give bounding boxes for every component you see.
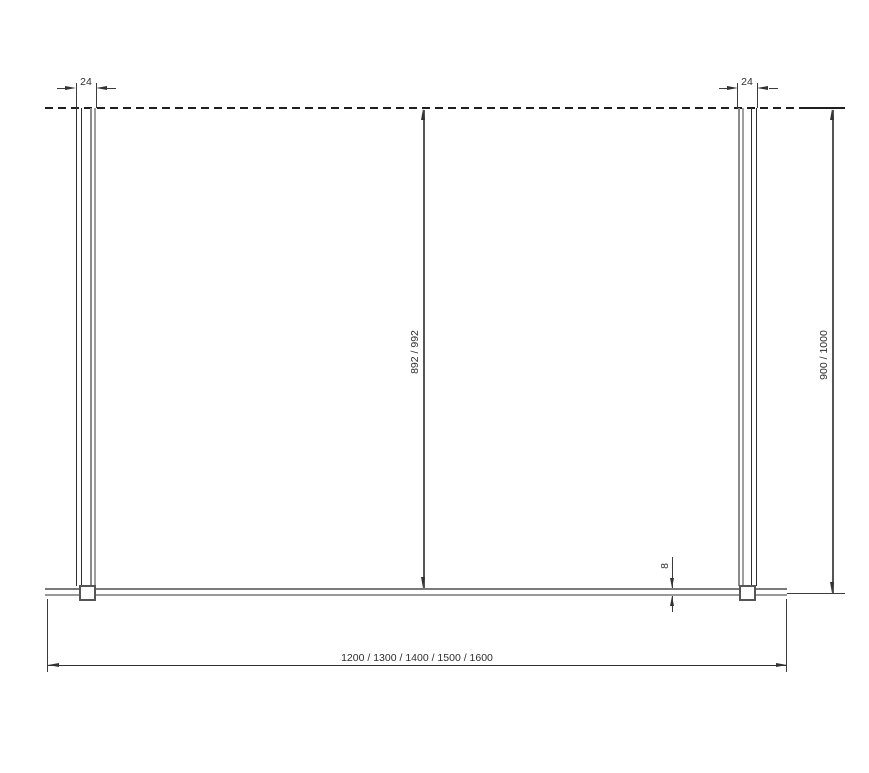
- glass-height-arrow-icon: [421, 577, 425, 588]
- right-profile-width-label: 24: [731, 76, 763, 88]
- left-24-tail-b: [107, 88, 116, 89]
- overall-width-label: 1200 / 1300 / 1400 / 1500 / 1600: [317, 652, 517, 664]
- right-foot-block: [739, 585, 756, 601]
- glass-height-dimension-line: [423, 110, 424, 588]
- right-glass-edge-line-2: [742, 108, 744, 586]
- right-24-tail-b: [769, 88, 778, 89]
- overall-width-dimension-line: [48, 665, 787, 666]
- thickness-arrow-icon: [670, 578, 674, 588]
- overall-width-arrow-icon: [48, 663, 59, 667]
- overall-width-extension-line-right: [786, 599, 787, 672]
- overall-height-label: 900 / 1000: [818, 315, 830, 395]
- right-profile-inner-edge: [751, 108, 752, 586]
- thickness-arrow-icon: [670, 596, 674, 606]
- technical-drawing-canvas: 24 24 892 / 992 900 / 1000 8 1200 / 1300…: [0, 0, 869, 773]
- top-reference-line: [45, 107, 845, 109]
- left-foot-block: [79, 585, 96, 601]
- overall-height-bottom-extension-line: [787, 593, 845, 594]
- right-glass-edge-line-1: [738, 108, 740, 586]
- bottom-profile-bar: [45, 588, 787, 596]
- left-glass-edge-line-2: [94, 108, 96, 586]
- bottom-profile-thickness-label: 8: [659, 556, 671, 576]
- overall-height-dimension-line: [832, 110, 833, 593]
- left-profile-outer-edge: [76, 108, 77, 586]
- overall-height-arrow-icon: [830, 109, 834, 120]
- glass-height-label: 892 / 992: [409, 312, 421, 392]
- left-profile-width-label: 24: [70, 76, 102, 88]
- left-glass-edge-line-1: [90, 108, 92, 586]
- overall-height-arrow-icon: [830, 582, 834, 593]
- right-profile-outer-edge: [756, 108, 757, 586]
- left-profile-inner-edge: [81, 108, 82, 586]
- overall-width-extension-line-left: [47, 599, 48, 672]
- overall-height-top-extension-line: [800, 107, 845, 108]
- overall-width-arrow-icon: [776, 663, 787, 667]
- glass-height-arrow-icon: [421, 109, 425, 120]
